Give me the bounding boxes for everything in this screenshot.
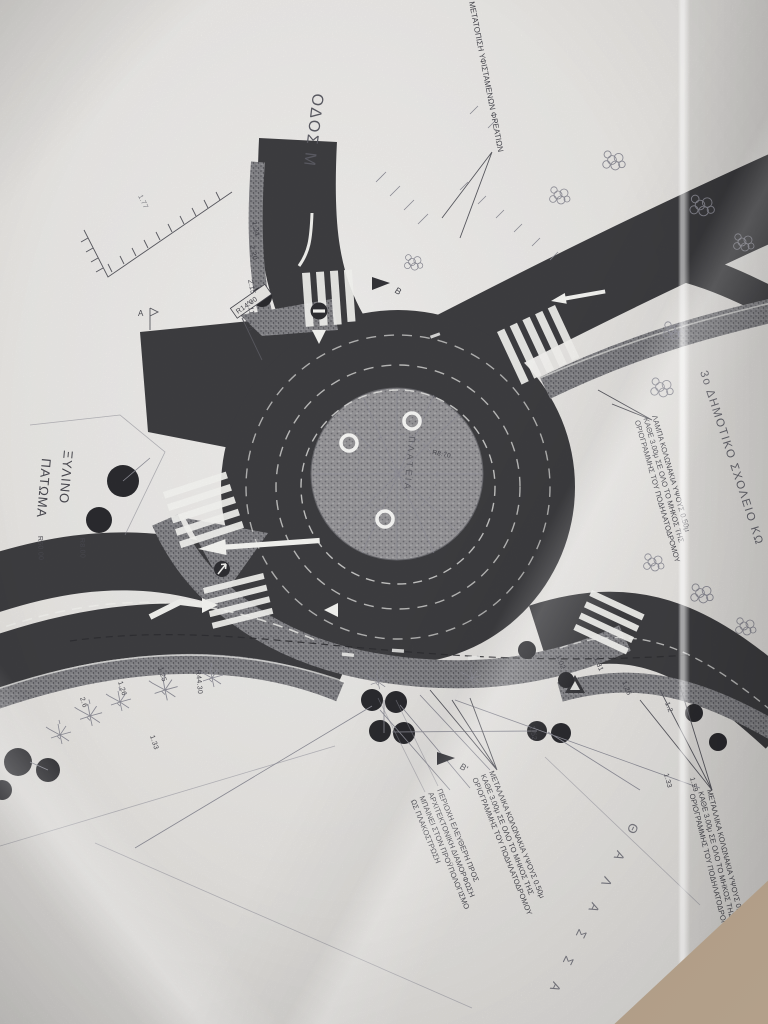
scan-noise <box>0 0 768 1024</box>
photo-of-roundabout-plan: R8.70 ΠΛΑΤΕΙΑ <box>0 0 768 1024</box>
plan-drawing: R8.70 ΠΛΑΤΕΙΑ <box>0 0 768 1024</box>
